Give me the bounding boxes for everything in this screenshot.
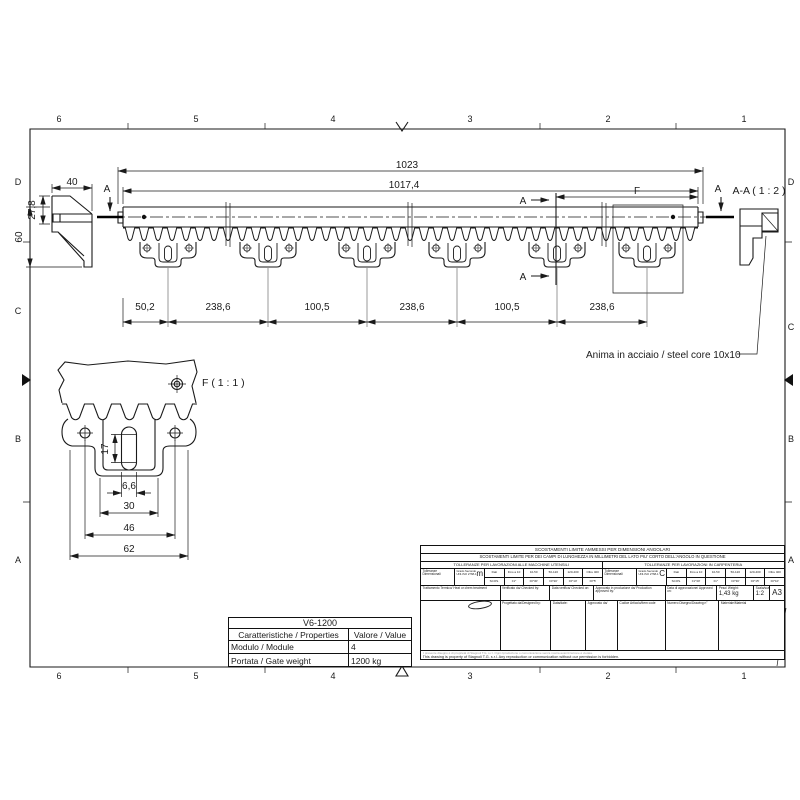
tb-notice-english: This drawing is property of Stagnoli T.G… <box>423 655 783 659</box>
tb-approved-on: Data di approvazione/ Approved on: <box>666 586 718 600</box>
zone-col: 2 <box>605 671 610 681</box>
section-view-title: A-A ( 1 : 2 ) <box>732 185 785 197</box>
tb-grade-carpentry: C <box>659 569 665 578</box>
side-view: 40 27,8 60 <box>14 177 92 267</box>
tb-signature-cell <box>421 601 501 650</box>
zone-row: C <box>15 306 22 316</box>
zone-row: B <box>788 434 794 444</box>
zone-labels-top: 6 5 4 3 2 1 <box>56 114 746 124</box>
tb-length-header: SCOSTAMENTI LIMITE PER DEI CAMPI DI LUNG… <box>421 554 784 561</box>
zone-row: B <box>15 434 21 444</box>
tb-cell: 10-50 <box>706 569 726 577</box>
tb-grade-label: Grado Secondo UNI-ISO 2768-1 <box>457 569 477 576</box>
tb-cell: 50-120 <box>544 569 564 577</box>
detail-view-F: F ( 1 : 1 ) 17 6,6 <box>58 360 245 560</box>
zone-col: 6 <box>56 671 61 681</box>
dim-text-62: 62 <box>123 544 135 555</box>
tb-scale-value: 1:2 <box>756 591 768 598</box>
dim-text-spacing: 238,6 <box>589 302 614 313</box>
zone-col: 4 <box>330 114 335 124</box>
tb-cell: Fino a 10 <box>505 569 525 577</box>
tb-machining-title: TOLLERANZE PER LAVORAZIONI ALLE MACCHINE… <box>421 562 603 568</box>
tb-checked-by: Verificato da/ Checked by: <box>501 586 551 600</box>
dim-text-30: 30 <box>123 501 135 512</box>
property-value: 4 <box>349 641 411 653</box>
rack-teeth <box>123 227 698 244</box>
tb-cell: 120-400 <box>746 569 766 577</box>
dim-F: F <box>556 186 698 197</box>
steel-core-tab-right <box>698 212 703 223</box>
section-letter: A <box>520 272 527 283</box>
dim-text-spacing: 100,5 <box>304 302 329 313</box>
tb-heat-treatment: Trattamento Termico/ Heat or chem treatm… <box>421 586 501 600</box>
tb-cell: Oltre 400 <box>583 569 602 577</box>
zone-row: A <box>15 555 21 565</box>
dim-spacing-chain: 50,2 238,6 100,5 238,6 100,5 238,6 <box>123 268 647 327</box>
tb-cell: 120-400 <box>564 569 584 577</box>
tb-cell: ±0°30' <box>524 578 544 586</box>
model-title: V6-1200 <box>229 618 411 629</box>
detail-teeth <box>62 403 197 424</box>
zone-row: A <box>788 555 794 565</box>
tb-designed-by: Progettato da/Designed by: <box>501 601 552 650</box>
tb-cell: SCOS. <box>667 578 687 586</box>
tb-cell: ±0°15' <box>746 578 766 586</box>
tb-material: Materiale/Material <box>719 601 784 650</box>
zone-labels-right: D C B A <box>788 177 795 565</box>
property-name: Modulo / Module <box>229 641 349 653</box>
center-mark-top <box>396 122 408 131</box>
tb-cell: ±0°5' <box>583 578 602 586</box>
detail-view-title: F ( 1 : 1 ) <box>202 377 245 389</box>
tb-cell: ±1° <box>505 578 525 586</box>
tb-cell: ±1° <box>706 578 726 586</box>
mounting-brackets <box>140 242 675 267</box>
properties-table: V6-1200 Caratteristiche / Properties Val… <box>228 617 412 667</box>
reference-dot <box>671 215 675 219</box>
tb-cell: Oltre 400 <box>765 569 784 577</box>
zone-row: D <box>15 177 22 187</box>
tb-cell: Dati <box>667 569 687 577</box>
section-letter: A <box>104 184 111 195</box>
col-header-properties: Caratteristiche / Properties <box>229 629 349 640</box>
tb-drawing-number: Numero Disegno/Drawing n° <box>666 601 720 650</box>
zone-col: 2 <box>605 114 610 124</box>
tb-cell: 50-120 <box>726 569 746 577</box>
tb-tol-label: Tolleranze Dimensionali <box>603 569 637 585</box>
tb-cell: Fino a 10 <box>687 569 707 577</box>
dim-text-spacing: 238,6 <box>399 302 424 313</box>
dim-text-1017: 1017,4 <box>389 180 420 191</box>
tb-cell: ±0°20' <box>544 578 564 586</box>
property-value: 1200 kg <box>349 654 411 667</box>
tb-carpentry-title: TOLLERANZE PER LAVORAZIONI IN CARPENTERI… <box>603 562 785 568</box>
tb-weight-value: 1,43 kg <box>719 591 752 598</box>
dim-side-height: 60 <box>14 207 82 267</box>
section-cut-right: A <box>706 184 734 217</box>
section-letter: A <box>715 184 722 195</box>
slot <box>122 427 137 470</box>
dim-text-spacing: 50,2 <box>135 302 155 313</box>
reference-dot <box>142 215 146 219</box>
dim-text-27-8: 27,8 <box>27 200 38 220</box>
tb-angular-header: SCOSTAMENTI LIMITE AMMESSI PER DIMENSION… <box>421 546 784 553</box>
dim-text-1023: 1023 <box>396 160 419 171</box>
zone-col: 1 <box>741 671 746 681</box>
section-view-AA: A-A ( 1 : 2 ) <box>732 185 785 354</box>
screw-hole <box>168 375 186 393</box>
property-name: Portata / Gate weight <box>229 654 349 667</box>
drawing-sheet: 6 5 4 3 2 1 6 5 4 3 2 1 D C B A D C B A <box>0 0 800 800</box>
zone-col: 5 <box>193 671 198 681</box>
tb-sheet-format: A3 <box>770 586 784 600</box>
zone-col: 1 <box>741 114 746 124</box>
table-row: Modulo / Module 4 <box>229 641 411 654</box>
zone-col: 3 <box>467 114 472 124</box>
steel-core-leader <box>737 236 766 354</box>
tb-cell: Dati <box>485 569 505 577</box>
table-row: Portata / Gate weight 1200 kg <box>229 654 411 667</box>
dim-text-spacing: 100,5 <box>494 302 519 313</box>
main-view: 1023 1017,4 F A A A A <box>97 160 734 327</box>
tb-cell: ±0°30' <box>726 578 746 586</box>
tb-approved-by: Approvato da/ <box>586 601 618 650</box>
dim-text-60: 60 <box>14 231 25 243</box>
tb-carpentry-grid: Dati Fino a 10 10-50 50-120 120-400 Oltr… <box>667 569 784 585</box>
steel-core-note: Anima in acciaio / steel core 10x10 <box>586 350 741 361</box>
cad-canvas: 6 5 4 3 2 1 6 5 4 3 2 1 D C B A D C B A <box>0 0 800 800</box>
tb-grade-machining: m <box>476 569 483 578</box>
zone-col: 3 <box>467 671 472 681</box>
tb-grade-label: Grado Secondo UNI-ISO 2768-1 <box>639 569 659 576</box>
zone-col: 5 <box>193 114 198 124</box>
tb-scale-label: Scala/scale: <box>756 587 768 591</box>
zone-col: 6 <box>56 114 61 124</box>
dim-text-spacing: 238,6 <box>205 302 230 313</box>
tb-date: Data/date: <box>551 601 586 650</box>
tb-cell: ±0°10' <box>765 578 784 586</box>
dim-text-46: 46 <box>123 523 135 534</box>
tb-production-approved: Approvato in produzione da/ Production a… <box>594 586 666 600</box>
detail-letter-label: F <box>634 186 640 197</box>
section-letter: A <box>520 196 527 207</box>
tb-cell: ±0°10' <box>564 578 584 586</box>
tb-item-code: Codice Articolo/Item code <box>618 601 666 650</box>
dim-text-40: 40 <box>66 177 78 188</box>
tb-tol-label: Tolleranze Dimensionali <box>421 569 455 585</box>
tb-weight-label: Peso/ Weight: <box>719 587 752 591</box>
tb-cell: SCOS. <box>485 578 505 586</box>
col-header-value: Valore / Value <box>349 629 411 640</box>
dim-body-length: 1017,4 <box>123 180 698 204</box>
tb-checked-on: Data verifica/ Checked on: <box>550 586 594 600</box>
zone-col: 4 <box>330 671 335 681</box>
tb-cell: ±1°30' <box>687 578 707 586</box>
zone-row: D <box>788 177 795 187</box>
tb-machining-grid: Dati Fino a 10 10-50 50-120 120-400 Oltr… <box>485 569 602 585</box>
zone-row: C <box>788 322 795 332</box>
dim-text-6-6: 6,6 <box>122 481 136 492</box>
dim-side-width: 40 <box>52 177 92 211</box>
dim-text-17: 17 <box>100 443 111 455</box>
tb-cell: 10-50 <box>524 569 544 577</box>
